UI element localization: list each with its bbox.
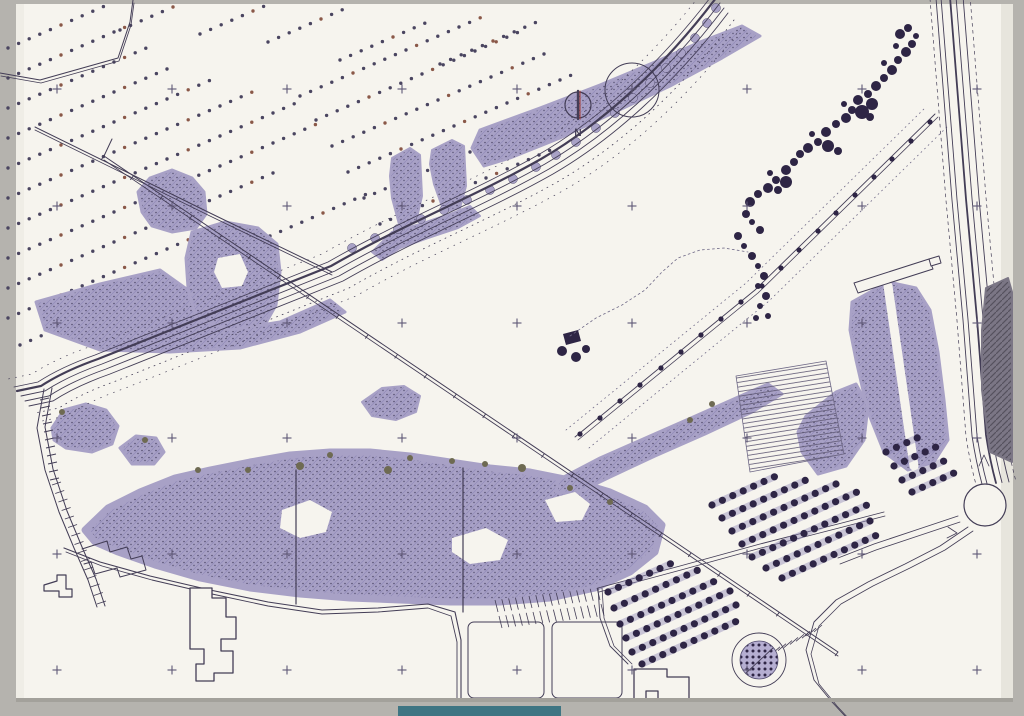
paper-bottom-shadow: [16, 698, 1013, 702]
svg-text:N: N: [574, 128, 581, 139]
north-label: N: [574, 128, 581, 139]
striped-field-parcel: [736, 361, 844, 472]
paper-left-shade: [16, 4, 24, 701]
scanned-site-plan-page: N: [0, 0, 1024, 716]
scan-artifact-strip: [398, 706, 561, 716]
roundabout-east: [964, 484, 1006, 526]
site-plan-map: N: [0, 0, 1024, 716]
